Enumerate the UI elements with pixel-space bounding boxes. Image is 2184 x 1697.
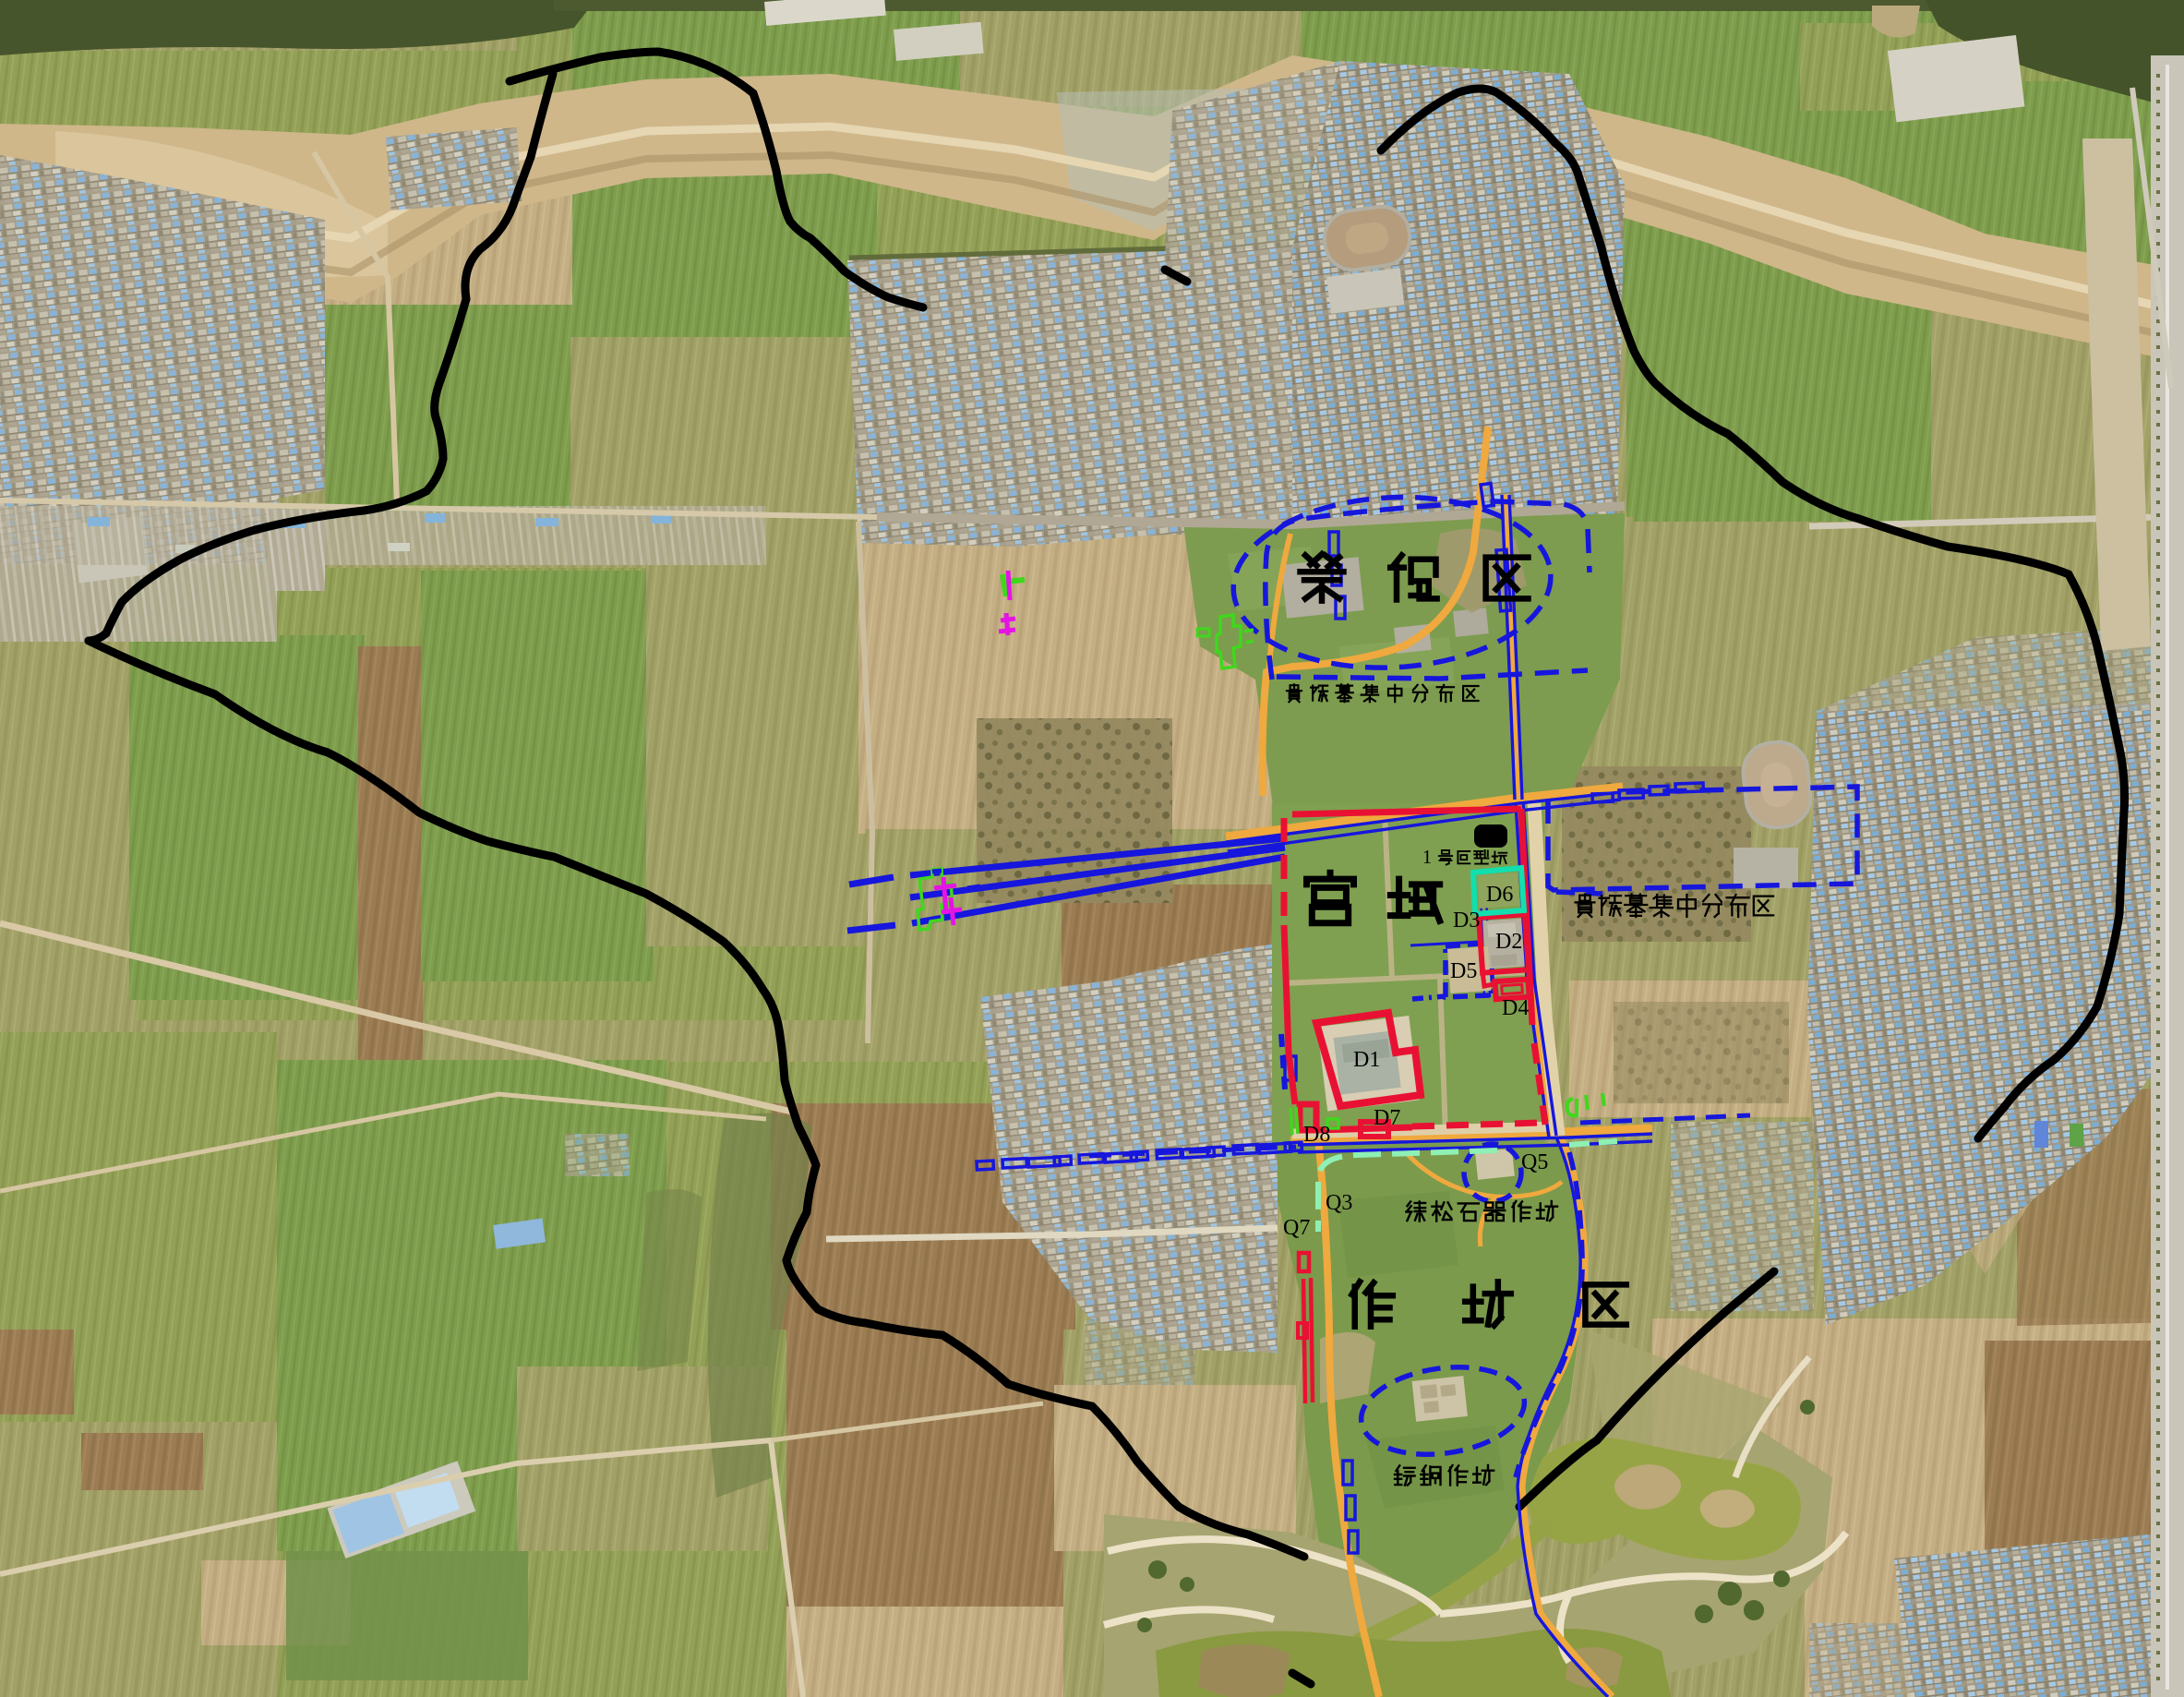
svg-text:D6: D6: [1486, 883, 1513, 907]
svg-text:D1: D1: [1353, 1048, 1380, 1072]
svg-text:D7: D7: [1374, 1106, 1400, 1130]
svg-text:Q7: Q7: [1283, 1216, 1310, 1240]
svg-text:D5: D5: [1450, 959, 1477, 983]
svg-text:D4: D4: [1502, 996, 1529, 1020]
svg-text:Q5: Q5: [1521, 1150, 1548, 1174]
svg-text:1: 1: [1422, 846, 1433, 868]
svg-text:D3: D3: [1453, 909, 1480, 933]
svg-text:D2: D2: [1495, 930, 1522, 954]
svg-text:D8: D8: [1303, 1123, 1330, 1147]
svg-text:Q3: Q3: [1326, 1191, 1352, 1215]
